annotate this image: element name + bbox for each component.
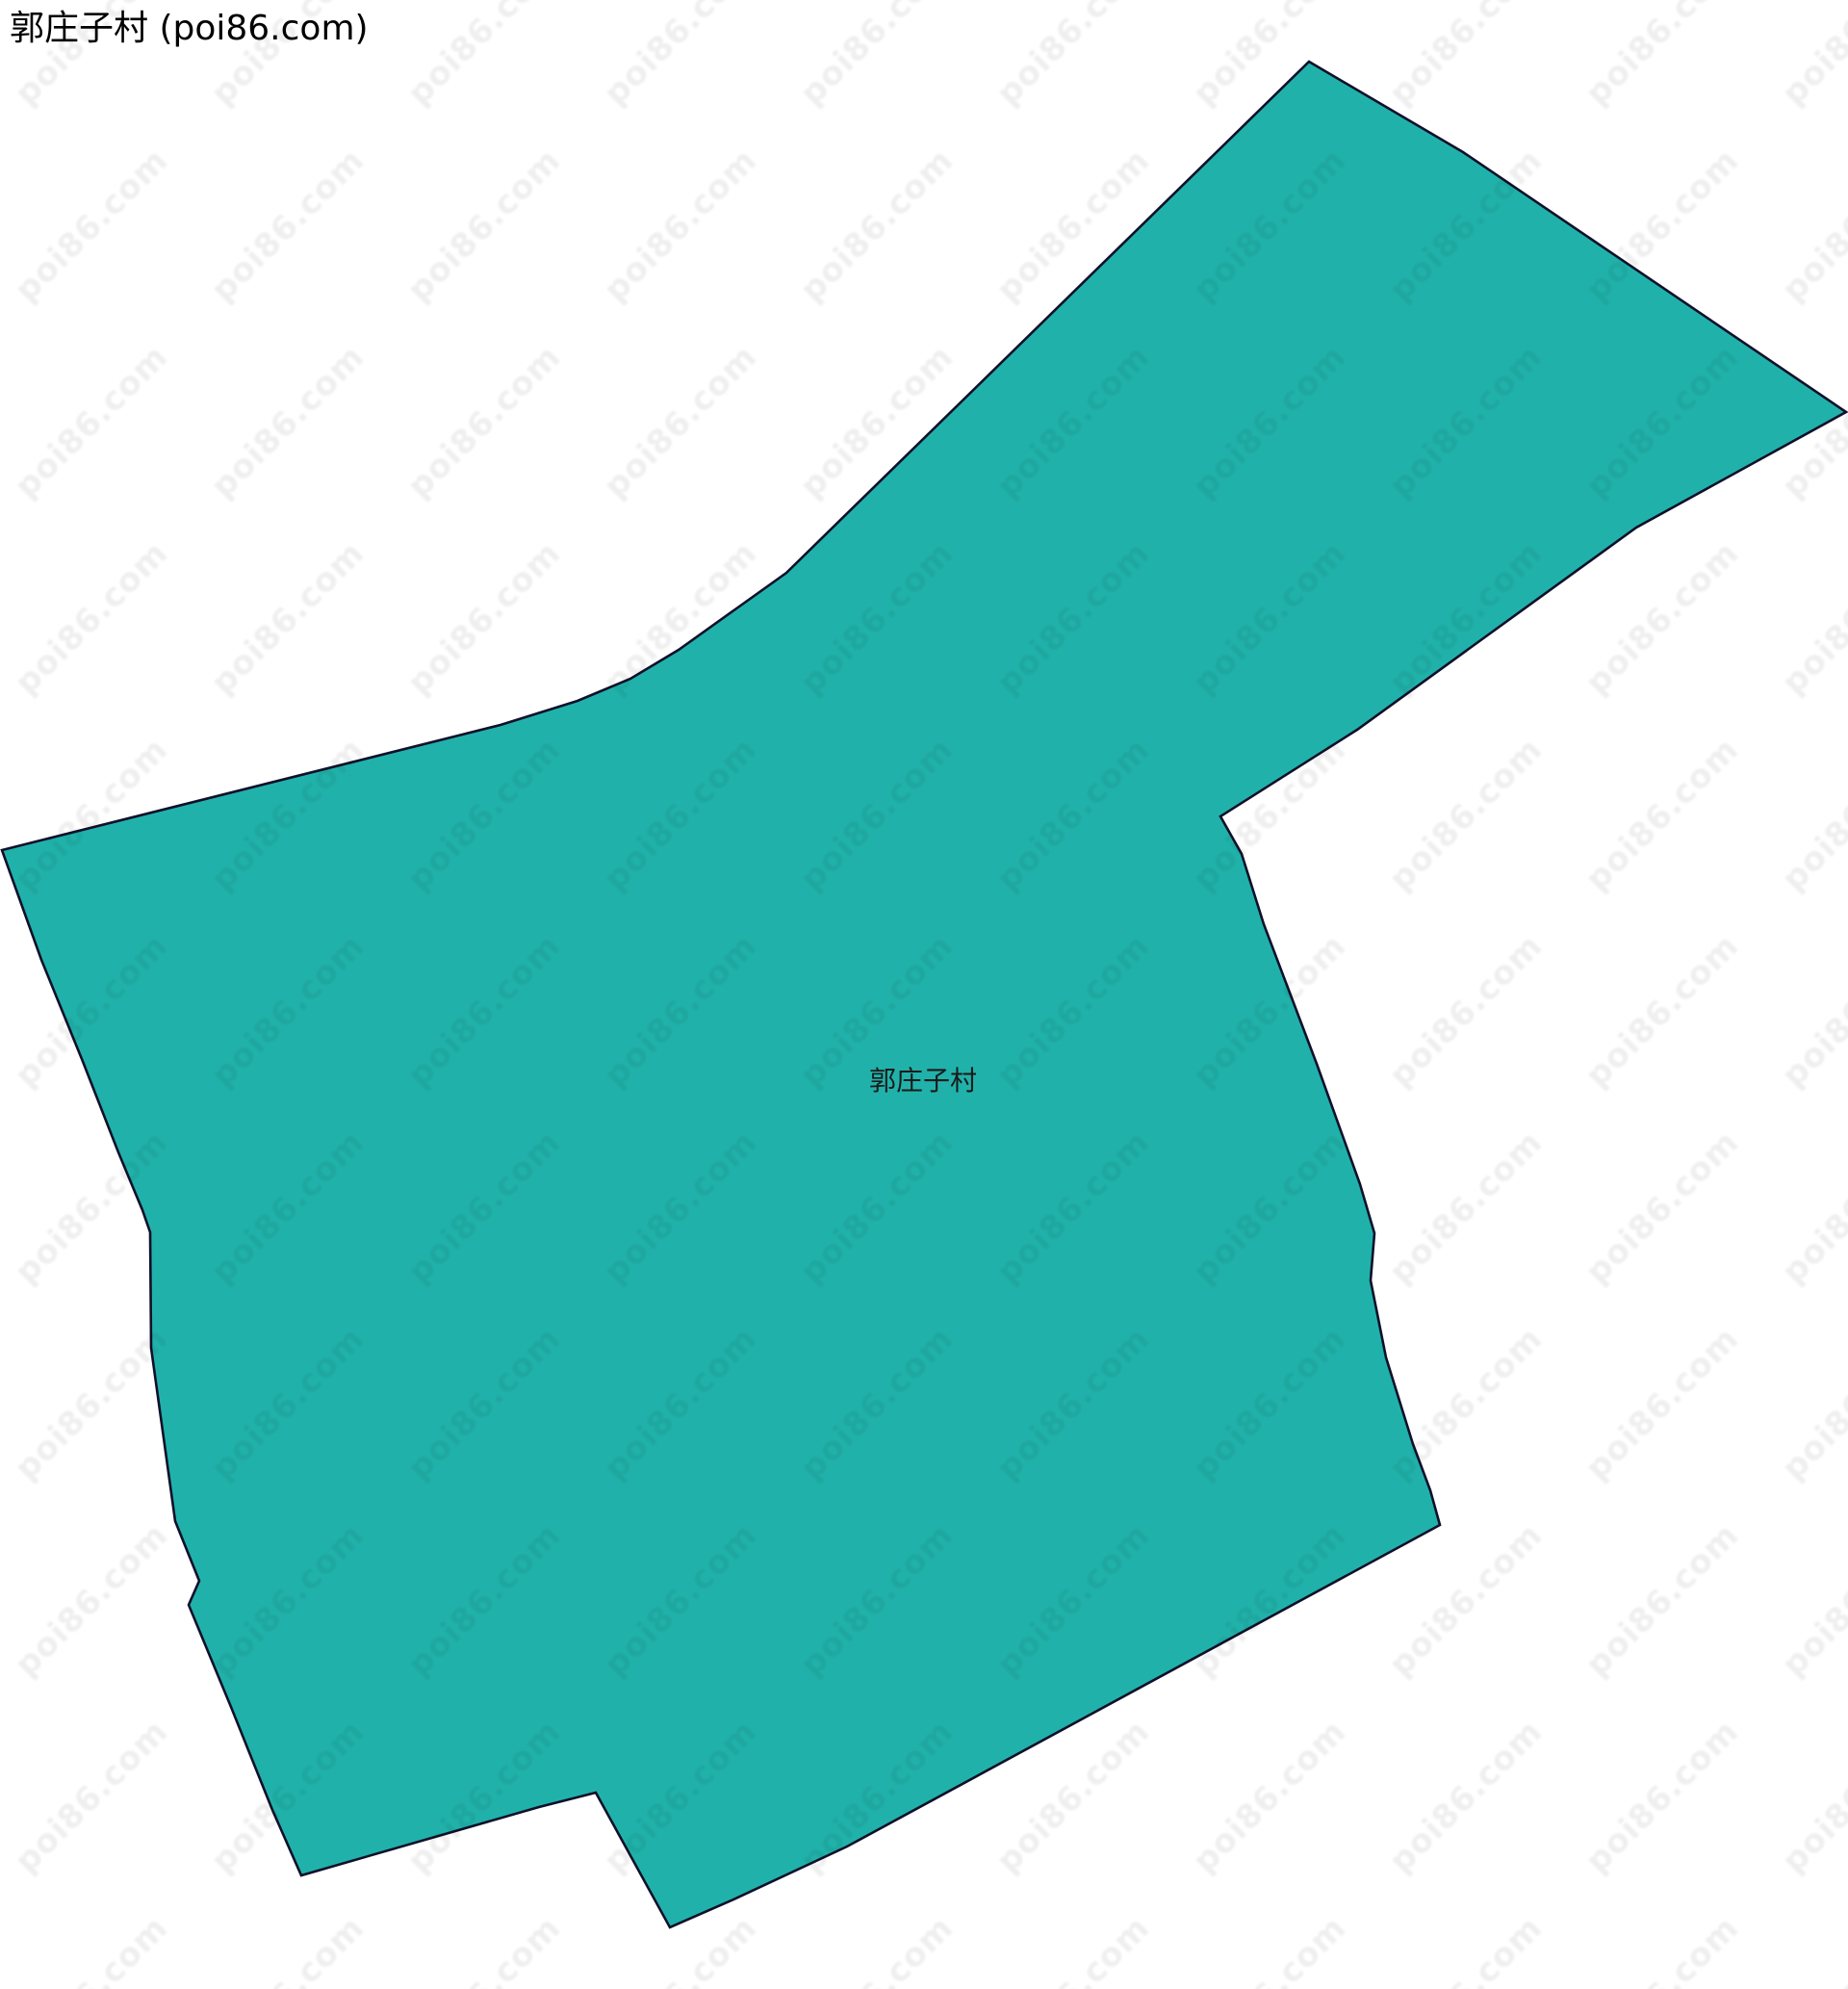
page-title: 郭庄子村 (poi86.com) xyxy=(10,8,369,49)
village-boundary-polygon xyxy=(2,62,1846,1927)
map-canvas: poi86.compoi86.compoi86.compoi86.compoi8… xyxy=(0,0,1848,1989)
village-label: 郭庄子村 xyxy=(869,1060,977,1098)
boundary-map xyxy=(0,0,1848,1989)
